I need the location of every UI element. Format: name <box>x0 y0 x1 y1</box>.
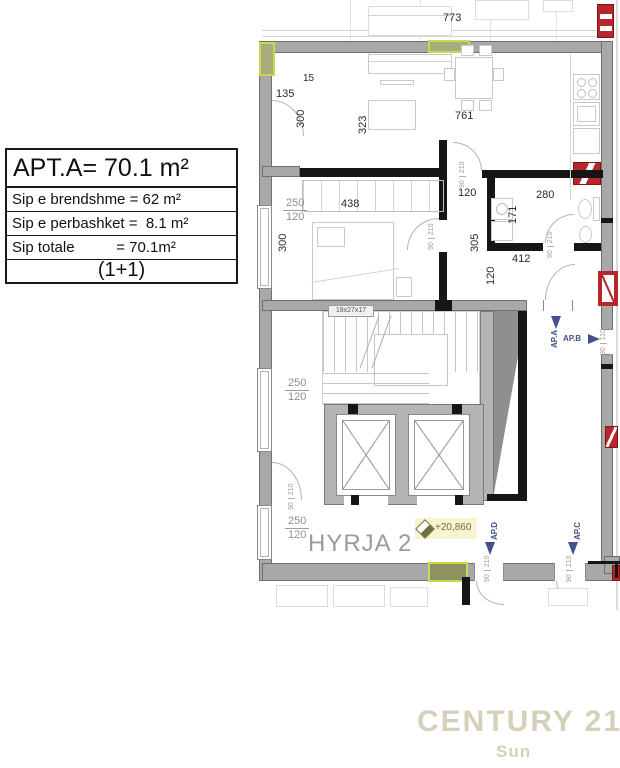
door-arc-lobby <box>272 462 302 500</box>
door-dim: 90210 <box>484 556 491 582</box>
dim-label: 412 <box>512 253 530 265</box>
level-marker: +20,860 <box>415 518 477 539</box>
sofa <box>368 54 452 74</box>
window-left-lobby <box>257 505 272 560</box>
balcony-table <box>475 0 529 20</box>
dim-stack: 250120 <box>285 515 309 542</box>
wall-bottom-stub <box>462 577 470 605</box>
floorplan-page: 18x27x17 773 135 15 300 323 761 438 300 … <box>0 0 620 768</box>
window-marker-red-outline <box>598 271 618 306</box>
lower-apartment-furniture <box>333 585 385 607</box>
staircase <box>322 311 480 405</box>
lower-apartment-furniture <box>548 588 588 606</box>
window-left-stairs <box>257 368 272 452</box>
wall-accent <box>452 404 462 414</box>
window-left-bedroom <box>257 205 272 289</box>
chair <box>493 68 504 81</box>
wall-bath-top <box>482 170 603 178</box>
nightstand <box>396 277 412 297</box>
green-wall-segment <box>259 42 275 76</box>
door-opening-apartment-a <box>543 300 573 311</box>
grid-line <box>350 0 351 41</box>
balcony-bench <box>543 0 573 12</box>
wall-accent <box>455 495 463 505</box>
wall-accent <box>348 404 358 414</box>
apartment-info-box: APT.A= 70.1 m² Sip e brendshme = 62 m² S… <box>5 148 238 284</box>
dim-label: 761 <box>455 110 473 122</box>
apartment-b-arrow-icon <box>588 334 600 344</box>
wall-tick <box>601 364 613 369</box>
wall-core-flange <box>487 494 527 501</box>
dim-label: 280 <box>536 189 554 201</box>
door-arc-apartment-d <box>476 581 504 605</box>
apartment-a-label: AP.A <box>550 330 559 348</box>
kitchen-sink <box>573 102 600 126</box>
wall-left <box>259 41 272 581</box>
balcony-edge-line <box>262 36 613 37</box>
dim-label: 120 <box>485 267 497 285</box>
door-arc-entry-a <box>545 264 575 300</box>
stair-spec-label: 18x27x17 <box>328 305 374 317</box>
apartment-c-label: AP.C <box>573 522 582 540</box>
washbasin <box>579 226 592 243</box>
dim-stack: 250120 <box>283 197 307 224</box>
brand-watermark: CENTURY 21 <box>417 705 620 739</box>
dim-label: 171 <box>507 206 519 224</box>
wall-core-right <box>518 311 527 497</box>
toilet-tank <box>593 197 600 221</box>
floor-plan: 18x27x17 773 135 15 300 323 761 438 300 … <box>0 0 620 620</box>
kitchen-cabinet <box>573 128 600 154</box>
dim-label: 773 <box>443 12 461 24</box>
door-dim: 90210 <box>566 556 573 582</box>
dim-label: 323 <box>357 116 369 134</box>
dim-label: 300 <box>295 110 307 128</box>
area-row-internal: Sip e brendshme = 62 m² <box>7 188 236 212</box>
dim-label: 438 <box>341 198 359 210</box>
elevator-shaft <box>336 414 396 496</box>
bed <box>312 222 394 300</box>
wall-core-top <box>262 300 527 311</box>
unit-type: (1+1) <box>7 260 236 282</box>
elevator-shaft <box>408 414 470 496</box>
wall-accent <box>351 495 359 505</box>
chair <box>479 45 492 56</box>
door-dim: 90210 <box>288 484 295 510</box>
tv-bench <box>368 100 416 130</box>
dim-label: 300 <box>277 234 289 252</box>
kitchen-counter-line <box>570 54 571 200</box>
level-value: +20,860 <box>435 522 471 533</box>
balcony-sofa <box>368 6 452 36</box>
window-marker-red <box>605 426 618 448</box>
door-dim: 90210 <box>547 232 554 258</box>
apartment-c-arrow-icon <box>568 542 578 555</box>
apartment-b-label: AP.B <box>563 334 581 343</box>
wall-tick <box>601 218 613 223</box>
door-dim: 90210 <box>459 162 466 188</box>
wall-bath-bottom-left <box>487 243 543 251</box>
wall-bedroom-stub <box>262 166 300 177</box>
chair <box>479 100 492 111</box>
corner-outline <box>615 563 618 578</box>
window-marker-red <box>597 4 614 38</box>
dim-label: 15 <box>303 73 314 84</box>
area-row-shared: Sip e perbashket = 8.1 m² <box>7 212 236 236</box>
area-row-total: Sip totale = 70.1m² <box>7 236 236 260</box>
dining-table <box>455 57 493 99</box>
wall-corridor-left-lower <box>439 252 447 304</box>
bath-cabinet <box>491 221 513 241</box>
toilet <box>578 199 592 219</box>
apartment-d-label: AP.D <box>490 522 499 540</box>
dim-label: 120 <box>458 187 476 199</box>
apartment-d-arrow-icon <box>485 542 495 555</box>
wall-bath-bottom-right <box>574 243 601 251</box>
coffee-table <box>380 80 414 85</box>
dim-label: 305 <box>469 234 481 252</box>
dim-label: 135 <box>276 88 294 100</box>
wall-bedroom-top <box>300 168 440 177</box>
wardrobe <box>302 180 444 212</box>
door-arc-living <box>453 142 482 171</box>
brand-watermark-sub: Sun <box>496 742 531 762</box>
stove <box>573 74 600 100</box>
chair <box>444 68 455 81</box>
apartment-title: APT.A= 70.1 m² <box>7 150 236 188</box>
lower-apartment-furniture <box>390 587 428 607</box>
lower-apartment-furniture <box>276 585 328 607</box>
pillow <box>317 227 345 247</box>
door-dim: 90210 <box>428 224 435 250</box>
dim-stack: 250120 <box>285 377 309 404</box>
apartment-a-arrow-icon <box>551 316 561 329</box>
window-dim: 90110 <box>600 329 607 355</box>
level-symbol-icon <box>415 519 435 539</box>
chair <box>461 45 474 56</box>
wall-core-black-segment <box>435 300 452 311</box>
lobby-name: HYRJA 2 <box>308 530 412 558</box>
